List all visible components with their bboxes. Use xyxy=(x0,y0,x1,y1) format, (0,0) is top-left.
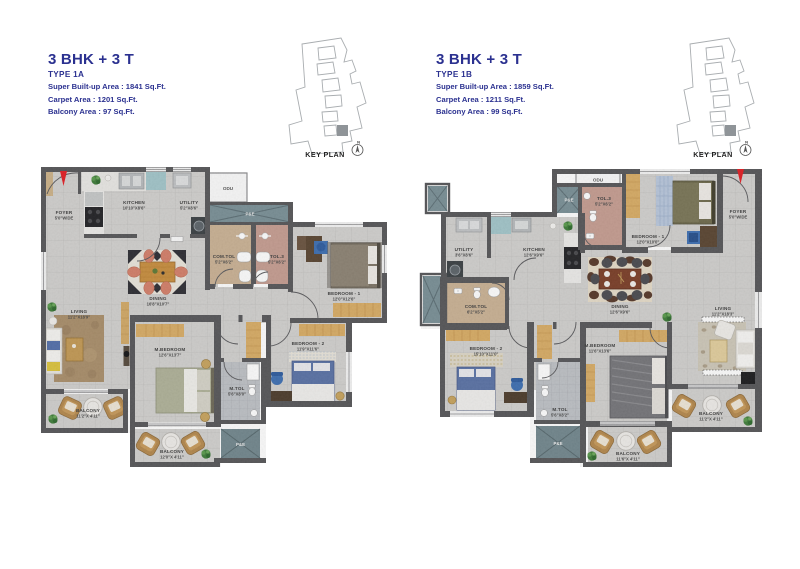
svg-text:KEY PLAN: KEY PLAN xyxy=(693,150,732,159)
svg-text:KEY PLAN: KEY PLAN xyxy=(305,150,344,159)
svg-text:N: N xyxy=(745,140,748,145)
svg-text:N: N xyxy=(357,140,360,145)
